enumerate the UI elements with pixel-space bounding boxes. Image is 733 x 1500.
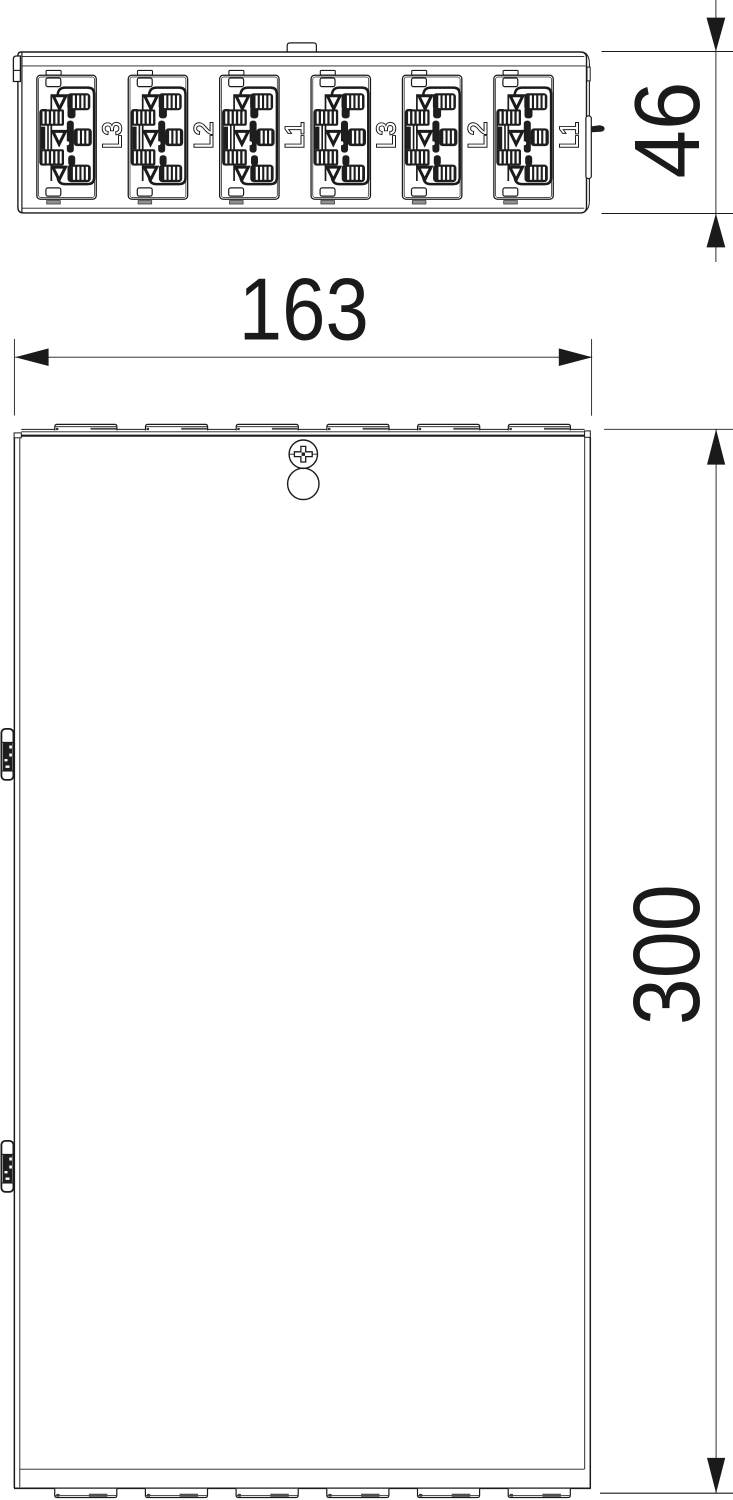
svg-text:L2: L2	[188, 122, 218, 149]
svg-text:46: 46	[615, 82, 719, 179]
svg-text:300: 300	[614, 884, 720, 1025]
svg-text:L2: L2	[463, 122, 493, 149]
svg-text:L3: L3	[371, 122, 401, 149]
svg-text:L3: L3	[97, 122, 127, 149]
svg-text:L1: L1	[280, 122, 310, 149]
svg-text:L1: L1	[554, 122, 584, 149]
svg-text:163: 163	[239, 259, 369, 358]
